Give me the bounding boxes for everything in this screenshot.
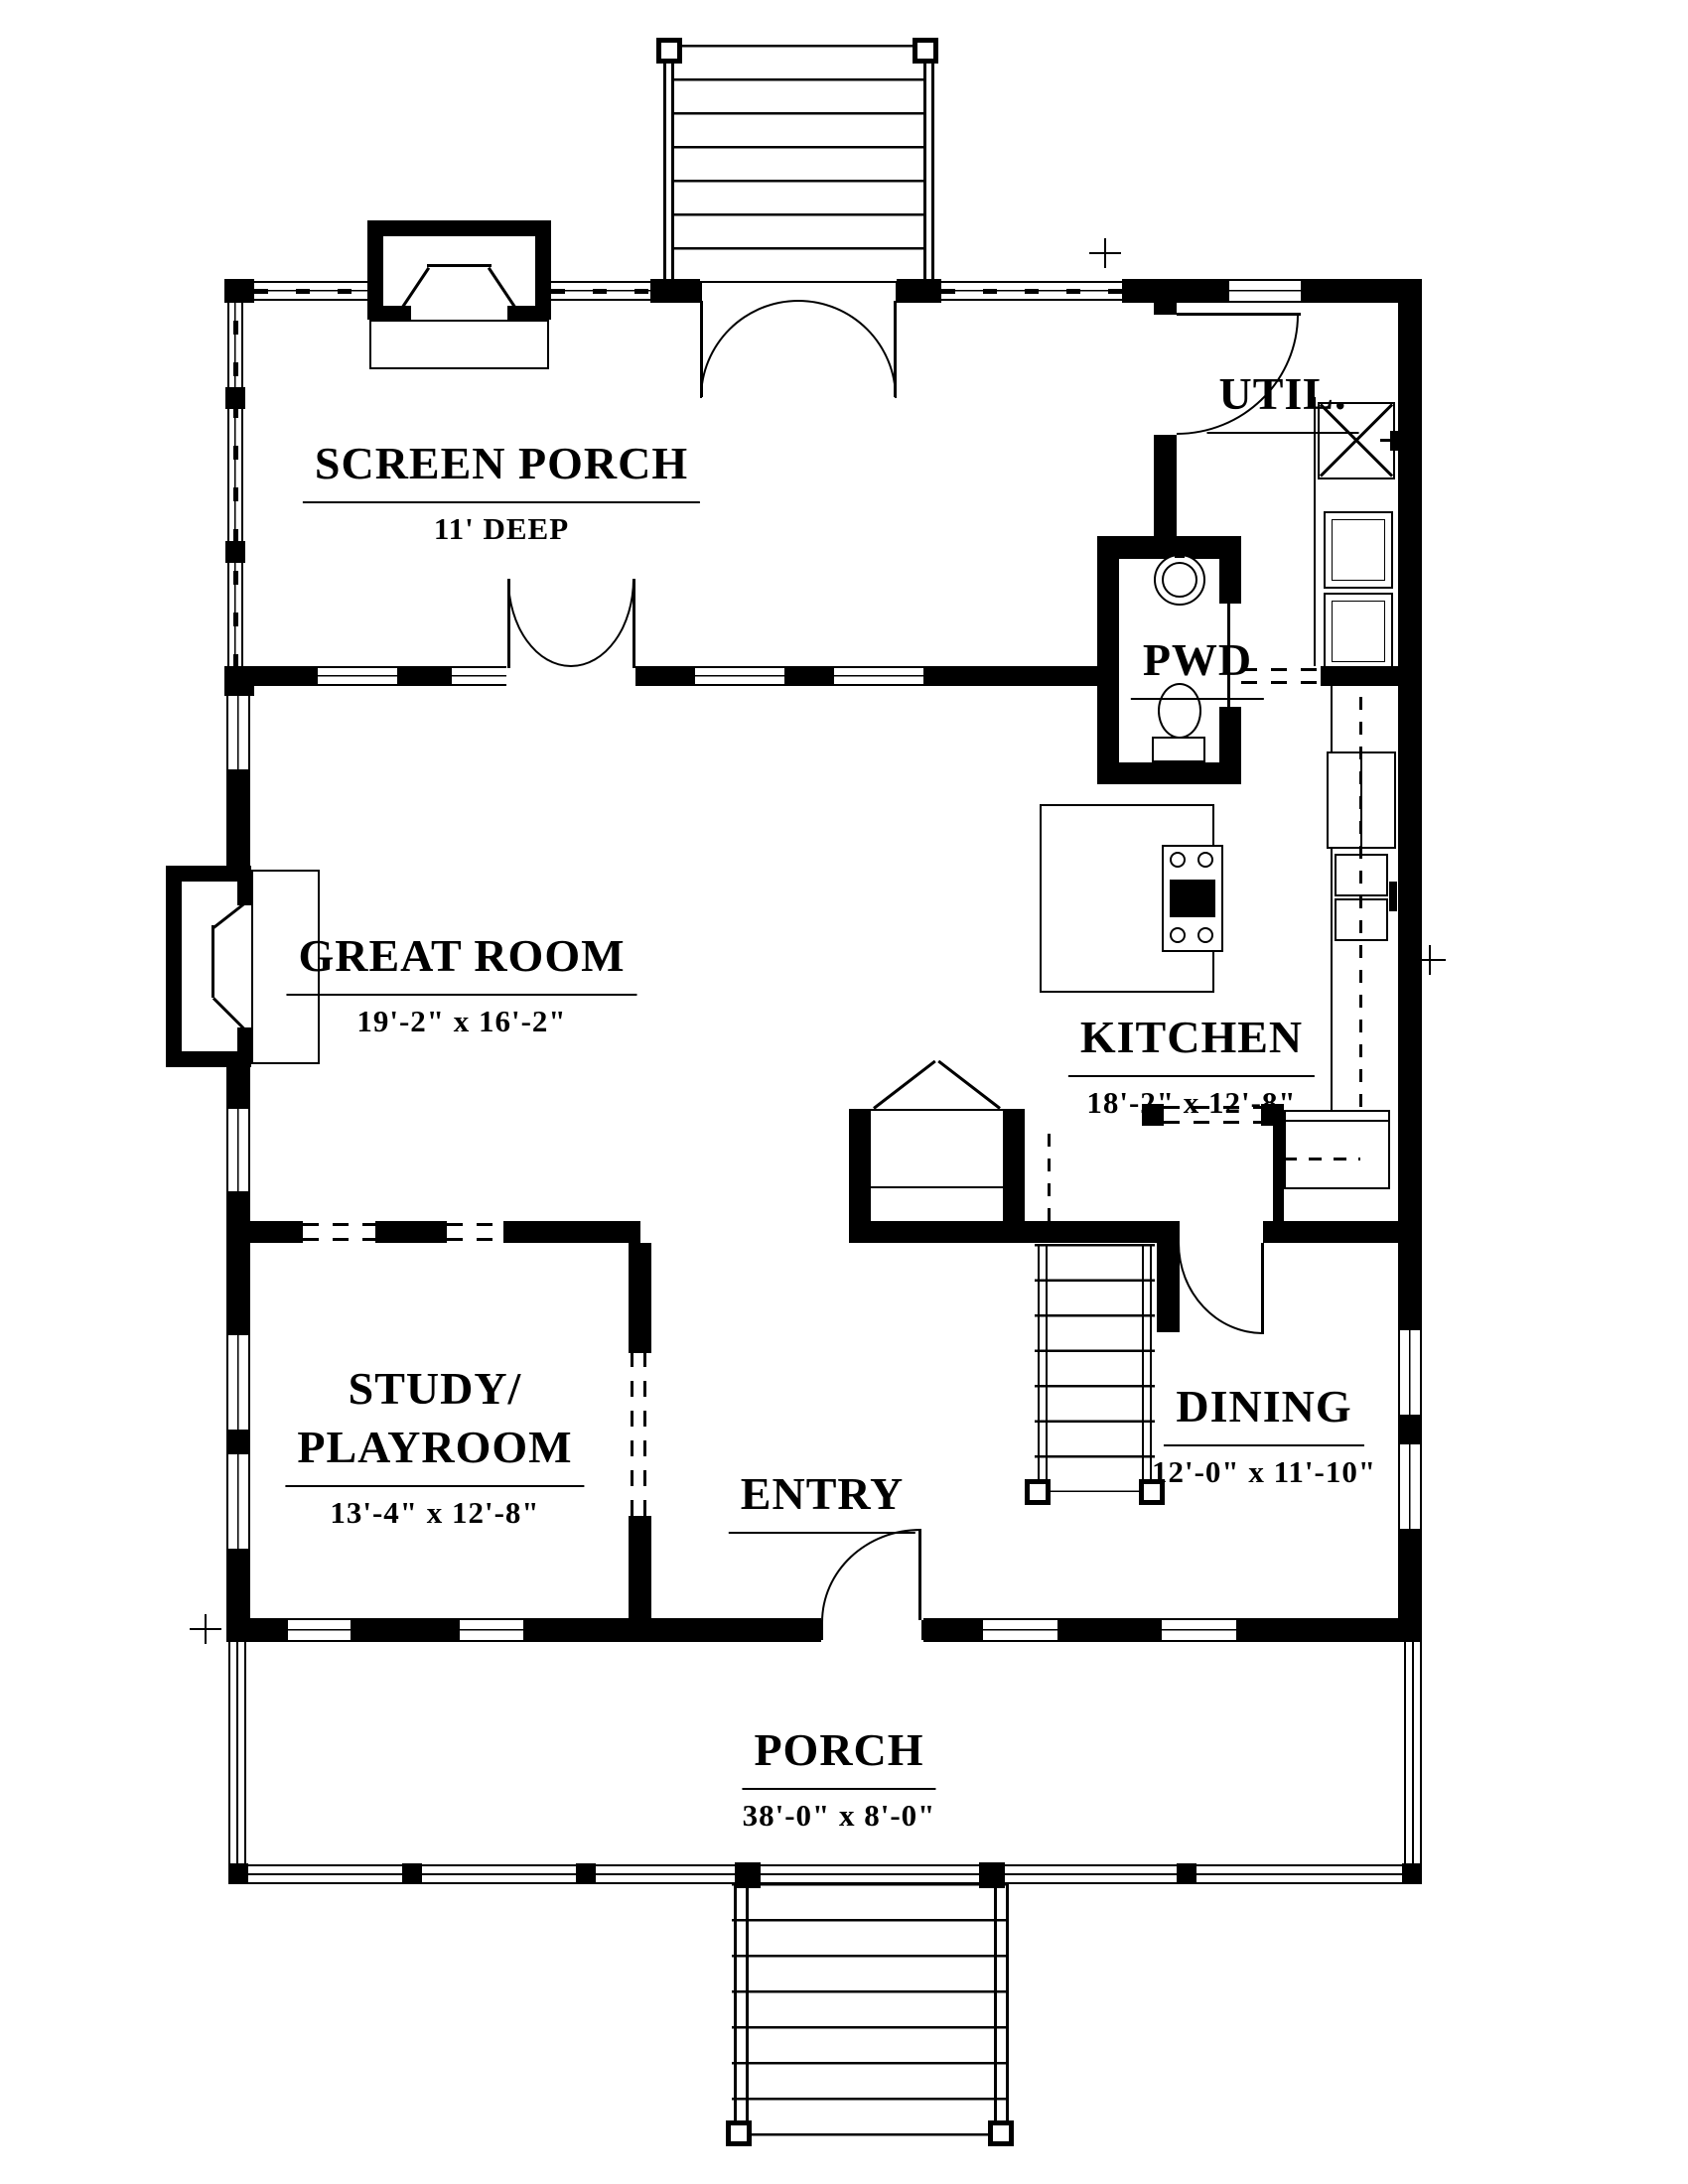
- range-burner-4: [1197, 927, 1213, 943]
- room-name-util: UTIL.: [1207, 365, 1359, 434]
- porch-post-2: [402, 1863, 422, 1883]
- kitchen-oven-handle: [1389, 882, 1397, 911]
- wall-front-c: [523, 1618, 821, 1642]
- main-stairs-rail-left: [1038, 1244, 1040, 1500]
- wall-top-util-a: [1154, 279, 1229, 303]
- screen-wall-left: [227, 303, 243, 668]
- room-name-screen-porch: SCREEN PORCH: [303, 435, 700, 503]
- room-label-pwd: PWD: [1131, 614, 1264, 718]
- room-label-dining: DINING 12'-0" x 11'-10": [1152, 1360, 1376, 1508]
- wall-porch-gr-d: [784, 666, 834, 686]
- room-name-entry: ENTRY: [729, 1465, 915, 1534]
- window-study-west-1: [226, 1335, 250, 1430]
- main-stairs-rail-left-inner: [1046, 1244, 1048, 1500]
- cased-opening-study-entry: [629, 1353, 651, 1516]
- section-marker-top-v: [1104, 238, 1106, 268]
- room-dims-screen-porch: 11' DEEP: [303, 511, 700, 547]
- screen-wall-top-a: [254, 281, 367, 301]
- rear-stairs-rail-left-inner: [671, 45, 674, 281]
- room-dims-kitchen: 18'-2" x 12'-8": [1068, 1085, 1315, 1121]
- front-steps-rail-left-1: [734, 1883, 737, 2139]
- window-porch-gr-1: [318, 666, 397, 686]
- porch-edge-left-1: [228, 1642, 230, 1884]
- window-study-front-1: [288, 1618, 351, 1642]
- main-stairs-rail-right-inner: [1142, 1244, 1144, 1500]
- wall-porch-gr-e: [923, 666, 1097, 686]
- fireplace-great-room-firebox-back: [211, 925, 214, 998]
- rear-stairs-rail-right: [931, 45, 934, 281]
- wall-post-porch-util: [1122, 279, 1154, 303]
- door-arc-gr-porch-left: [507, 579, 571, 667]
- fireplace-porch-firebox-back: [427, 264, 492, 267]
- util-washer-inner: [1332, 519, 1385, 581]
- room-name-great-room: GREAT ROOM: [286, 927, 636, 996]
- screen-post-left-1: [225, 387, 245, 409]
- util-sink-faucet-stem: [1380, 439, 1390, 442]
- wall-left-d: [226, 1430, 250, 1454]
- wall-util-west-top: [1154, 303, 1177, 315]
- front-steps-rail-right-2: [1006, 1883, 1009, 2139]
- room-label-util: UTIL.: [1207, 347, 1359, 452]
- closet-wall-right: [1003, 1109, 1025, 1223]
- room-dims-porch: 38'-0" x 8'-0": [742, 1798, 935, 1834]
- door-arc-dining: [1178, 1243, 1263, 1334]
- window-util-rear: [1229, 279, 1301, 303]
- util-dryer-inner: [1332, 601, 1385, 662]
- room-dims-study: 13'-4" x 12'-8": [285, 1495, 584, 1531]
- screen-wall-top-c: [941, 281, 1122, 301]
- window-study-west-2: [226, 1454, 250, 1549]
- wall-post-door-right: [897, 279, 941, 303]
- window-dining-front-1: [983, 1618, 1057, 1642]
- util-sink-faucet: [1390, 431, 1398, 451]
- closet-door-leaf-right: [937, 1060, 1001, 1110]
- range-burner-2: [1197, 852, 1213, 868]
- porch-edge-left-3: [244, 1642, 246, 1884]
- rear-stairs-rail-right-inner: [923, 45, 926, 281]
- section-marker-right-v: [1429, 945, 1431, 975]
- wall-left-c: [226, 1191, 250, 1335]
- cased-opening-study-2: [447, 1221, 503, 1243]
- range-center: [1170, 880, 1215, 917]
- closet-door-leaf-left: [873, 1060, 936, 1110]
- wall-passage-jog: [1273, 1126, 1284, 1221]
- wall-pwd-right-upper: [1219, 536, 1241, 604]
- wall-top-left-corner: [224, 279, 254, 303]
- room-label-kitchen: KITCHEN 18'-2" x 12'-8": [1068, 991, 1315, 1139]
- room-label-porch: PORCH 38'-0" x 8'-0": [742, 1704, 935, 1851]
- floor-plan: SCREEN PORCH 11' DEEP UTIL. PWD GREAT RO…: [0, 0, 1688, 2184]
- door-arc-porch-entry-left: [700, 300, 798, 398]
- wall-front-e: [1057, 1618, 1162, 1642]
- wall-front-d: [923, 1618, 983, 1642]
- wall-post-door-left: [650, 279, 700, 303]
- closet-shelf-line: [871, 1186, 1003, 1188]
- room-name-dining: DINING: [1164, 1378, 1363, 1446]
- kitchen-counter-edge-east: [1331, 686, 1333, 1110]
- wall-mid-a: [226, 1221, 303, 1243]
- wall-stair-east: [1157, 1243, 1180, 1332]
- rear-stairs-newel-left: [656, 38, 682, 64]
- front-steps-rail-left-2: [746, 1883, 749, 2139]
- room-label-great-room: GREAT ROOM 19'-2" x 16'-2": [286, 909, 636, 1057]
- wall-front-a: [226, 1618, 288, 1642]
- porch-edge-right-3: [1420, 1642, 1422, 1884]
- door-arc-gr-porch-right: [571, 579, 634, 667]
- room-dims-great-room: 19'-2" x 16'-2": [286, 1004, 636, 1039]
- section-marker-left-v: [205, 1614, 207, 1644]
- porch-post-3: [576, 1863, 596, 1883]
- room-name-study: STUDY/ PLAYROOM: [285, 1360, 584, 1487]
- wall-mid-d: [849, 1221, 1180, 1243]
- porch-post-6: [1177, 1863, 1196, 1883]
- window-dining-east-2: [1398, 1444, 1422, 1529]
- room-name-porch: PORCH: [742, 1721, 935, 1790]
- stair-overhead-dashed: [1048, 1126, 1051, 1221]
- rear-stairs-newel-right: [913, 38, 938, 64]
- wall-mid-c: [503, 1221, 640, 1243]
- wall-left-a: [226, 769, 250, 866]
- wall-right-a: [1398, 279, 1422, 1330]
- pwd-toilet-tank: [1152, 737, 1205, 762]
- wall-pwd-left: [1097, 536, 1119, 784]
- kitchen-upper-cabinets-dashed: [1359, 690, 1362, 1157]
- window-dining-front-2: [1162, 1618, 1236, 1642]
- pwd-sink-faucet: [1175, 548, 1185, 558]
- porch-edge-left-2: [236, 1642, 238, 1884]
- door-arc-porch-entry-right: [798, 300, 897, 398]
- wall-porch-gr-a: [226, 666, 318, 686]
- room-label-study: STUDY/ PLAYROOM 13'-4" x 12'-8": [285, 1342, 584, 1549]
- wall-front-b: [351, 1618, 460, 1642]
- wall-right-b: [1398, 1415, 1422, 1444]
- front-steps-treads: [732, 1883, 1008, 2139]
- screen-wall-top-b: [551, 281, 655, 301]
- range-burner-3: [1170, 927, 1186, 943]
- window-great-room-west: [226, 696, 250, 769]
- wall-left-b: [226, 1067, 250, 1109]
- room-dims-dining: 12'-0" x 11'-10": [1152, 1454, 1376, 1490]
- window-porch-gr-4: [834, 666, 923, 686]
- porch-post-7: [1402, 1863, 1422, 1883]
- window-dining-east-1: [1398, 1330, 1422, 1415]
- front-steps-newel-left: [726, 2120, 752, 2146]
- wall-porch-gr-b: [397, 666, 452, 686]
- wall-front-f: [1236, 1618, 1422, 1642]
- pwd-sink-inner: [1162, 562, 1197, 598]
- front-steps-rail-right-1: [994, 1883, 997, 2139]
- rear-stairs-treads: [674, 45, 924, 283]
- wall-mid-b: [375, 1221, 447, 1243]
- front-steps-newel-right: [988, 2120, 1014, 2146]
- kitchen-upper-cabinets-dashed-south: [1284, 1158, 1360, 1160]
- closet-wall-left: [849, 1109, 871, 1223]
- closet-header-line: [871, 1109, 1003, 1111]
- porch-edge-right-1: [1404, 1642, 1406, 1884]
- porch-post-1: [228, 1863, 248, 1883]
- rear-stairs-rail-left: [663, 45, 666, 281]
- window-west-mid: [226, 1109, 250, 1191]
- wall-study-entry-bottom: [629, 1516, 651, 1620]
- screen-post-left-2: [225, 541, 245, 563]
- wall-util-west-bottom: [1154, 435, 1177, 538]
- porch-edge-right-2: [1412, 1642, 1414, 1884]
- wall-pwd-right-lower: [1219, 707, 1241, 784]
- room-label-entry: ENTRY: [729, 1447, 915, 1552]
- window-porch-gr-2: [452, 666, 506, 686]
- room-name-pwd: PWD: [1131, 631, 1264, 700]
- fireplace-porch-hearth: [369, 320, 549, 369]
- wall-study-entry-top: [629, 1243, 651, 1353]
- window-study-front-2: [460, 1618, 523, 1642]
- window-porch-gr-3: [695, 666, 784, 686]
- door-jamb-porch-entry-left: [700, 281, 702, 301]
- room-label-screen-porch: SCREEN PORCH 11' DEEP: [303, 417, 700, 565]
- room-name-kitchen: KITCHEN: [1068, 1009, 1315, 1077]
- range-burner-1: [1170, 852, 1186, 868]
- wall-mid-e: [1263, 1221, 1422, 1243]
- main-stairs-treads: [1035, 1244, 1155, 1492]
- cased-opening-study-1: [303, 1221, 375, 1243]
- wall-porch-gr-c: [635, 666, 695, 686]
- main-stairs-newel-left: [1025, 1479, 1051, 1505]
- front-door-jamb-left: [821, 1620, 823, 1640]
